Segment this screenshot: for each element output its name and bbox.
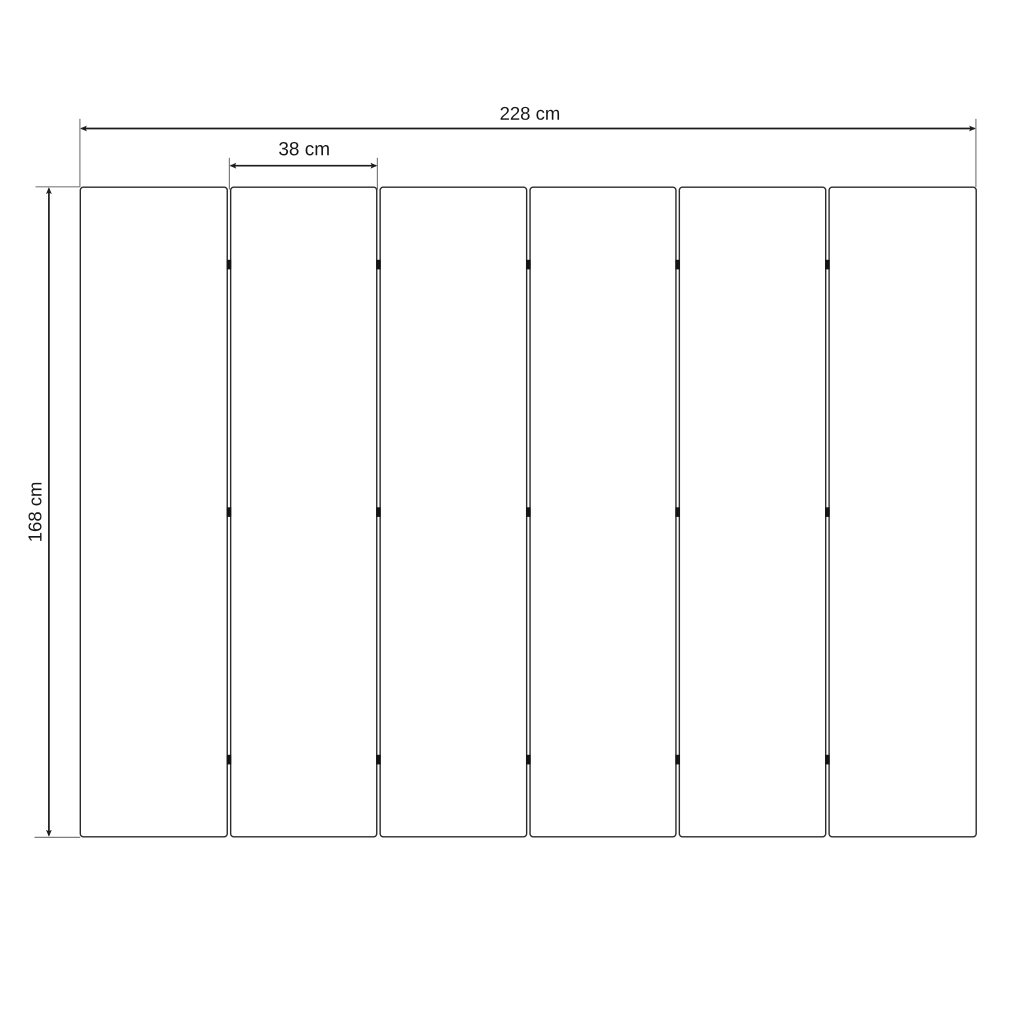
svg-text:168 cm: 168 cm <box>25 482 46 543</box>
svg-text:228 cm: 228 cm <box>500 103 561 124</box>
svg-text:38 cm: 38 cm <box>278 139 330 160</box>
